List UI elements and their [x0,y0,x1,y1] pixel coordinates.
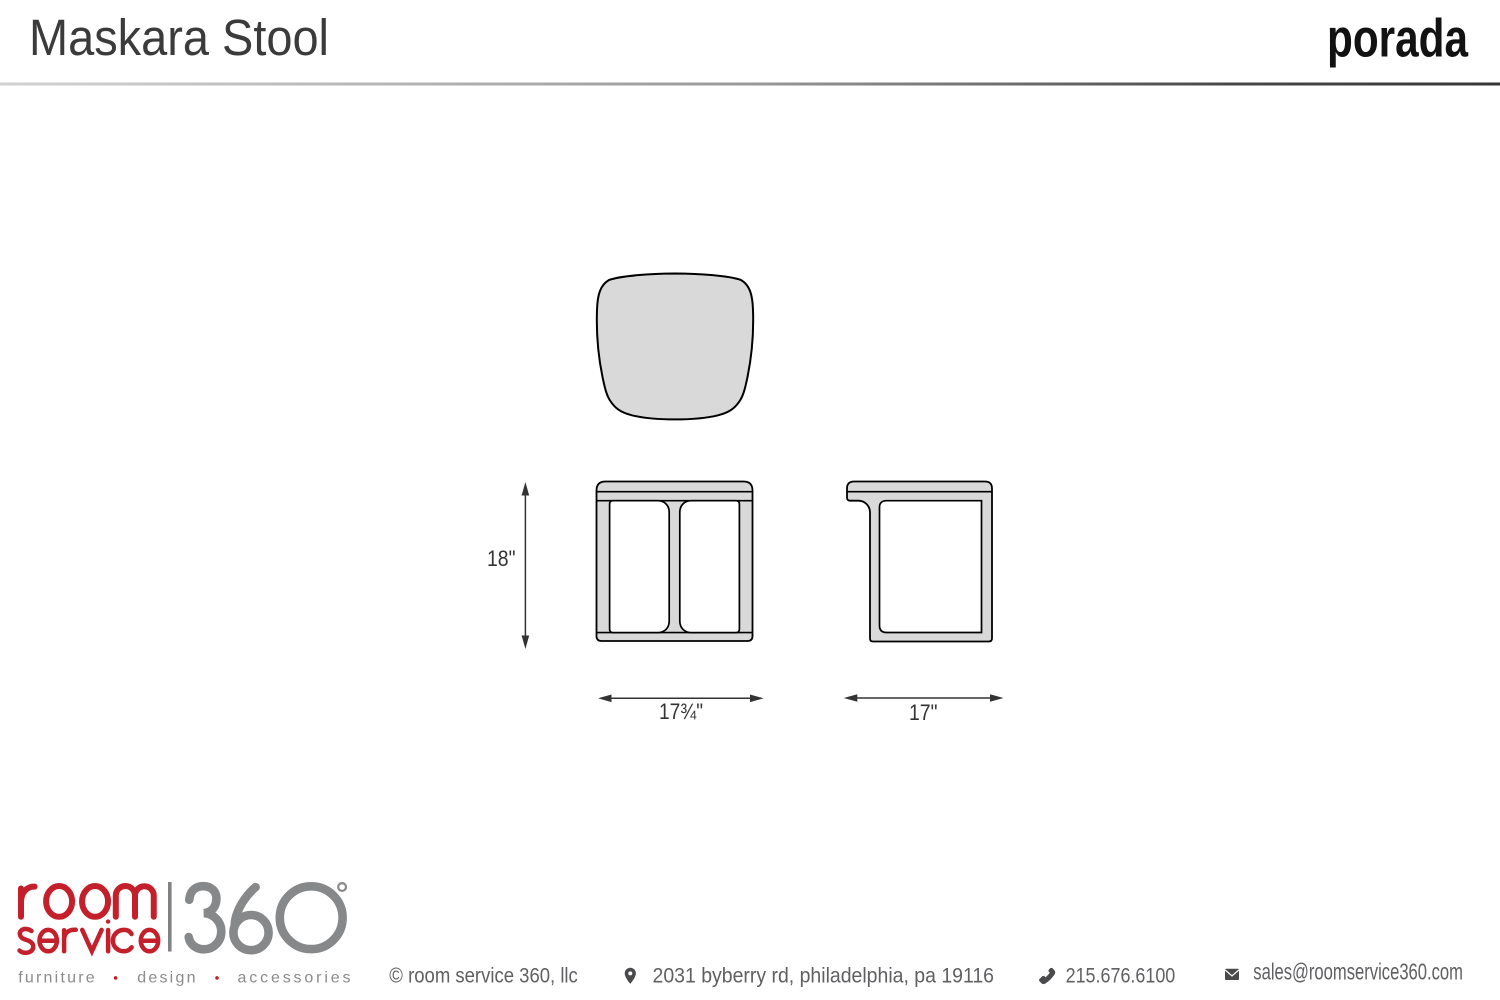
svg-text:accessories: accessories [238,970,351,987]
svg-text:furniture: furniture [18,970,95,987]
svg-text:porada: porada [1327,9,1469,69]
svg-text:17¾": 17¾" [659,699,703,724]
svg-text:© room service 360, llc: © room service 360, llc [389,963,578,987]
svg-text:2031 byberry rd, philadelphia,: 2031 byberry rd, philadelphia, pa 19116 [653,963,995,987]
svg-text:17": 17" [909,700,938,725]
svg-text:Maskara Stool: Maskara Stool [29,9,329,66]
svg-text:design: design [137,970,195,987]
svg-text:18": 18" [487,546,516,571]
svg-text:sales@roomservice360.com: sales@roomservice360.com [1253,959,1463,985]
svg-text:215.676.6100: 215.676.6100 [1066,963,1176,987]
